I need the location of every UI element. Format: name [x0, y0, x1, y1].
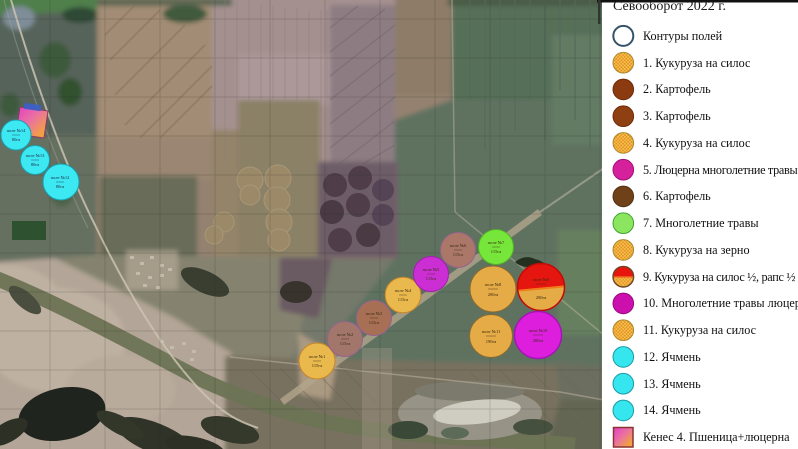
- svg-text:поле №3: поле №3: [366, 311, 383, 316]
- svg-text:200га: 200га: [533, 338, 544, 343]
- svg-text:115га: 115га: [426, 276, 436, 281]
- svg-text:поле №10: поле №10: [529, 328, 549, 333]
- svg-text:115га: 115га: [453, 252, 463, 257]
- svg-text:поле №13: поле №13: [26, 153, 46, 158]
- svg-text:190га: 190га: [486, 339, 497, 344]
- svg-text:поле №8: поле №8: [485, 282, 502, 287]
- svg-text:115га: 115га: [369, 320, 379, 325]
- svg-text:поле №9: поле №9: [533, 277, 550, 282]
- svg-text:поле №1: поле №1: [309, 354, 326, 359]
- svg-text:115га: 115га: [312, 363, 322, 368]
- svg-text:поле №2: поле №2: [337, 332, 354, 337]
- svg-text:поле №6: поле №6: [450, 243, 467, 248]
- svg-text:80га: 80га: [12, 137, 20, 142]
- svg-text:поле №4: поле №4: [395, 288, 412, 293]
- svg-text:200га: 200га: [488, 292, 499, 297]
- svg-text:80га: 80га: [56, 184, 64, 189]
- svg-text:поле №5: поле №5: [423, 267, 440, 272]
- svg-text:115га: 115га: [340, 341, 350, 346]
- svg-text:поле №12: поле №12: [51, 175, 70, 180]
- svg-text:115га: 115га: [491, 249, 501, 254]
- svg-text:115га: 115га: [398, 297, 408, 302]
- svg-text:поле №11: поле №11: [482, 329, 501, 334]
- svg-text:80га: 80га: [31, 162, 39, 167]
- svg-text:поле №7: поле №7: [488, 240, 505, 245]
- svg-text:200га: 200га: [536, 295, 547, 300]
- svg-text:поле №14: поле №14: [7, 128, 27, 133]
